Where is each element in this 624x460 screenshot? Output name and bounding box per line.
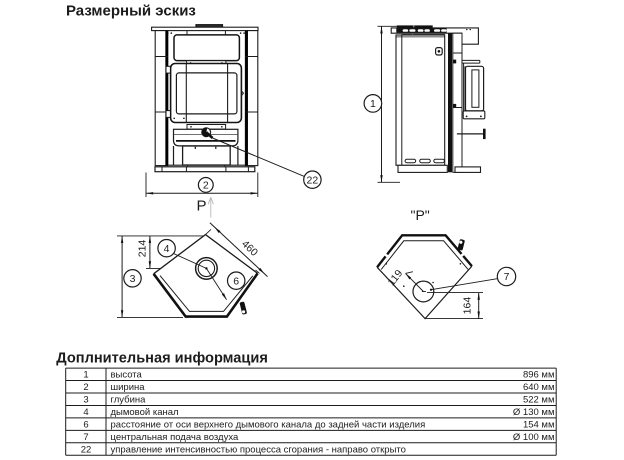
svg-text:Доплнительная информация: Доплнительная информация: [56, 351, 268, 367]
svg-text:3: 3: [130, 273, 136, 285]
svg-text:640 мм: 640 мм: [523, 382, 555, 393]
svg-text:глубина: глубина: [111, 395, 147, 406]
svg-text:4: 4: [164, 243, 170, 255]
svg-text:Ø 130 мм: Ø 130 мм: [513, 407, 555, 418]
svg-text:22: 22: [307, 174, 319, 186]
svg-text:522 мм: 522 мм: [523, 395, 555, 406]
svg-text:214: 214: [136, 240, 148, 258]
svg-text:управление интенсивностью проц: управление интенсивностью процесса сгора…: [111, 444, 406, 455]
svg-text:2: 2: [83, 382, 88, 393]
svg-text:2: 2: [203, 180, 209, 192]
svg-text:6: 6: [83, 419, 88, 430]
svg-text:3: 3: [83, 395, 88, 406]
svg-text:22: 22: [81, 444, 92, 455]
svg-text:высота: высота: [111, 370, 143, 381]
svg-text:164: 164: [461, 297, 473, 315]
svg-text:1: 1: [370, 98, 376, 110]
svg-text:7: 7: [504, 271, 510, 283]
svg-text:154 мм: 154 мм: [523, 419, 555, 430]
svg-text:7: 7: [83, 432, 88, 443]
svg-text:ширина: ширина: [111, 382, 146, 393]
svg-text:Ø 100 мм: Ø 100 мм: [513, 432, 555, 443]
svg-text:6: 6: [233, 275, 239, 287]
svg-text:"P": "P": [411, 207, 430, 223]
svg-text:расстояние от оси верхнего дым: расстояние от оси верхнего дымового кана…: [111, 419, 426, 430]
svg-text:4: 4: [83, 407, 88, 418]
svg-text:896 мм: 896 мм: [523, 370, 555, 381]
svg-text:1: 1: [83, 370, 88, 381]
svg-text:P: P: [197, 198, 207, 215]
svg-text:центральная подача воздуха: центральная подача воздуха: [111, 432, 239, 443]
svg-text:дымовой канал: дымовой канал: [111, 407, 179, 418]
svg-text:Размерный эскиз: Размерный эскиз: [66, 3, 196, 20]
